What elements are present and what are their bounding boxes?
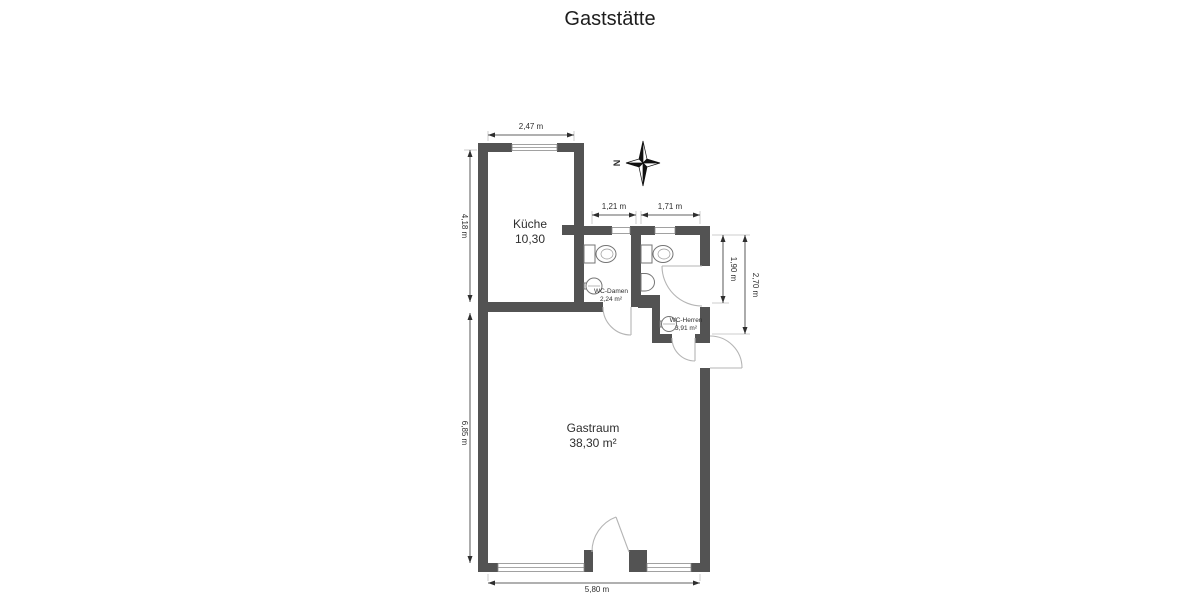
wc-damen-area-label: 2,24 m² [600, 296, 623, 303]
kitchen-room-label: Küche [513, 217, 547, 231]
wc-herren-bottom-wall-left [652, 334, 672, 343]
wc-herren-left-wall [652, 305, 660, 338]
toilet-icon-herren [641, 245, 673, 263]
dimension-label-wc-damen-height: 1,90 m [729, 257, 738, 282]
gastraum-room-label: Gastraum [567, 421, 620, 435]
bottom-wall-left-corner [478, 563, 498, 572]
main-entrance-door [592, 517, 629, 552]
dimensions: 2,47 m 1,21 m 1,71 m 4,18 m 6,8 [460, 122, 760, 594]
wc-herren-room-label: WC-Herren [670, 317, 703, 324]
dimension-label-wc-herren-height: 2,70 m [751, 273, 760, 298]
gastraum-top-wall [478, 302, 603, 312]
kitchen-area-label: 10,30 [515, 232, 545, 246]
dimension-label-wc-herren-width: 1,71 m [658, 202, 683, 211]
wc-top-wall-left [574, 226, 612, 235]
urinal-icon-herren [641, 274, 655, 292]
dimension-label-upper-left-height: 4,18 m [460, 214, 469, 239]
wall-junction-stub [562, 225, 574, 235]
doors [592, 266, 742, 552]
dimension-upper-left-height: 4,18 m [460, 150, 477, 302]
kitchen-top-wall-left [478, 143, 512, 152]
floor-plan-drawing: N Küche 10,30 WC-Damen 2,24 m² WC-Herren… [440, 100, 780, 600]
outer-left-wall [478, 143, 488, 572]
entrance-jamb-left [584, 550, 593, 572]
kitchen-right-wall [574, 143, 584, 307]
page-title: Gaststätte [440, 8, 780, 31]
floor-plan-page: Gaststätte [0, 0, 1200, 600]
wc-herren-side-door [662, 266, 702, 306]
wc-herren-door [672, 338, 695, 361]
gastraum-side-door [710, 336, 742, 368]
compass-icon: N [612, 141, 660, 186]
dimension-kitchen-width: 2,47 m [488, 122, 574, 141]
dimension-wc-herren-height: 2,70 m [712, 235, 760, 334]
outer-right-wall-lower [700, 368, 710, 572]
dimension-label-lower-left-height: 6,85 m [460, 421, 469, 446]
dimension-label-wc-damen-width: 1,21 m [602, 202, 627, 211]
compass-north-label: N [612, 160, 622, 167]
dimension-wc-damen-height: 1,90 m [712, 235, 750, 303]
gastraum-area-label: 38,30 m² [569, 436, 616, 450]
dimension-wc-herren-width: 1,71 m [641, 202, 700, 224]
entrance-jamb-right [629, 550, 647, 572]
toilet-icon-damen [584, 245, 616, 263]
wc-divider-wall [631, 226, 641, 307]
dimension-wc-damen-width: 1,21 m [592, 202, 636, 224]
outer-right-wall-upper [700, 226, 710, 266]
wc-damen-window [612, 228, 630, 234]
dimension-label-bottom-width: 5,80 m [585, 585, 610, 594]
dimension-label-kitchen-width: 2,47 m [519, 122, 544, 131]
dimension-bottom-width: 5,80 m [488, 574, 700, 594]
wc-herren-window [655, 228, 675, 234]
dimension-lower-left-height: 6,85 m [460, 313, 470, 563]
wc-damen-room-label: WC-Damen [594, 288, 628, 295]
wc-damen-door [603, 307, 631, 335]
bottom-wall-right-corner [691, 563, 710, 572]
wc-herren-area-label: 3,91 m² [675, 325, 698, 332]
